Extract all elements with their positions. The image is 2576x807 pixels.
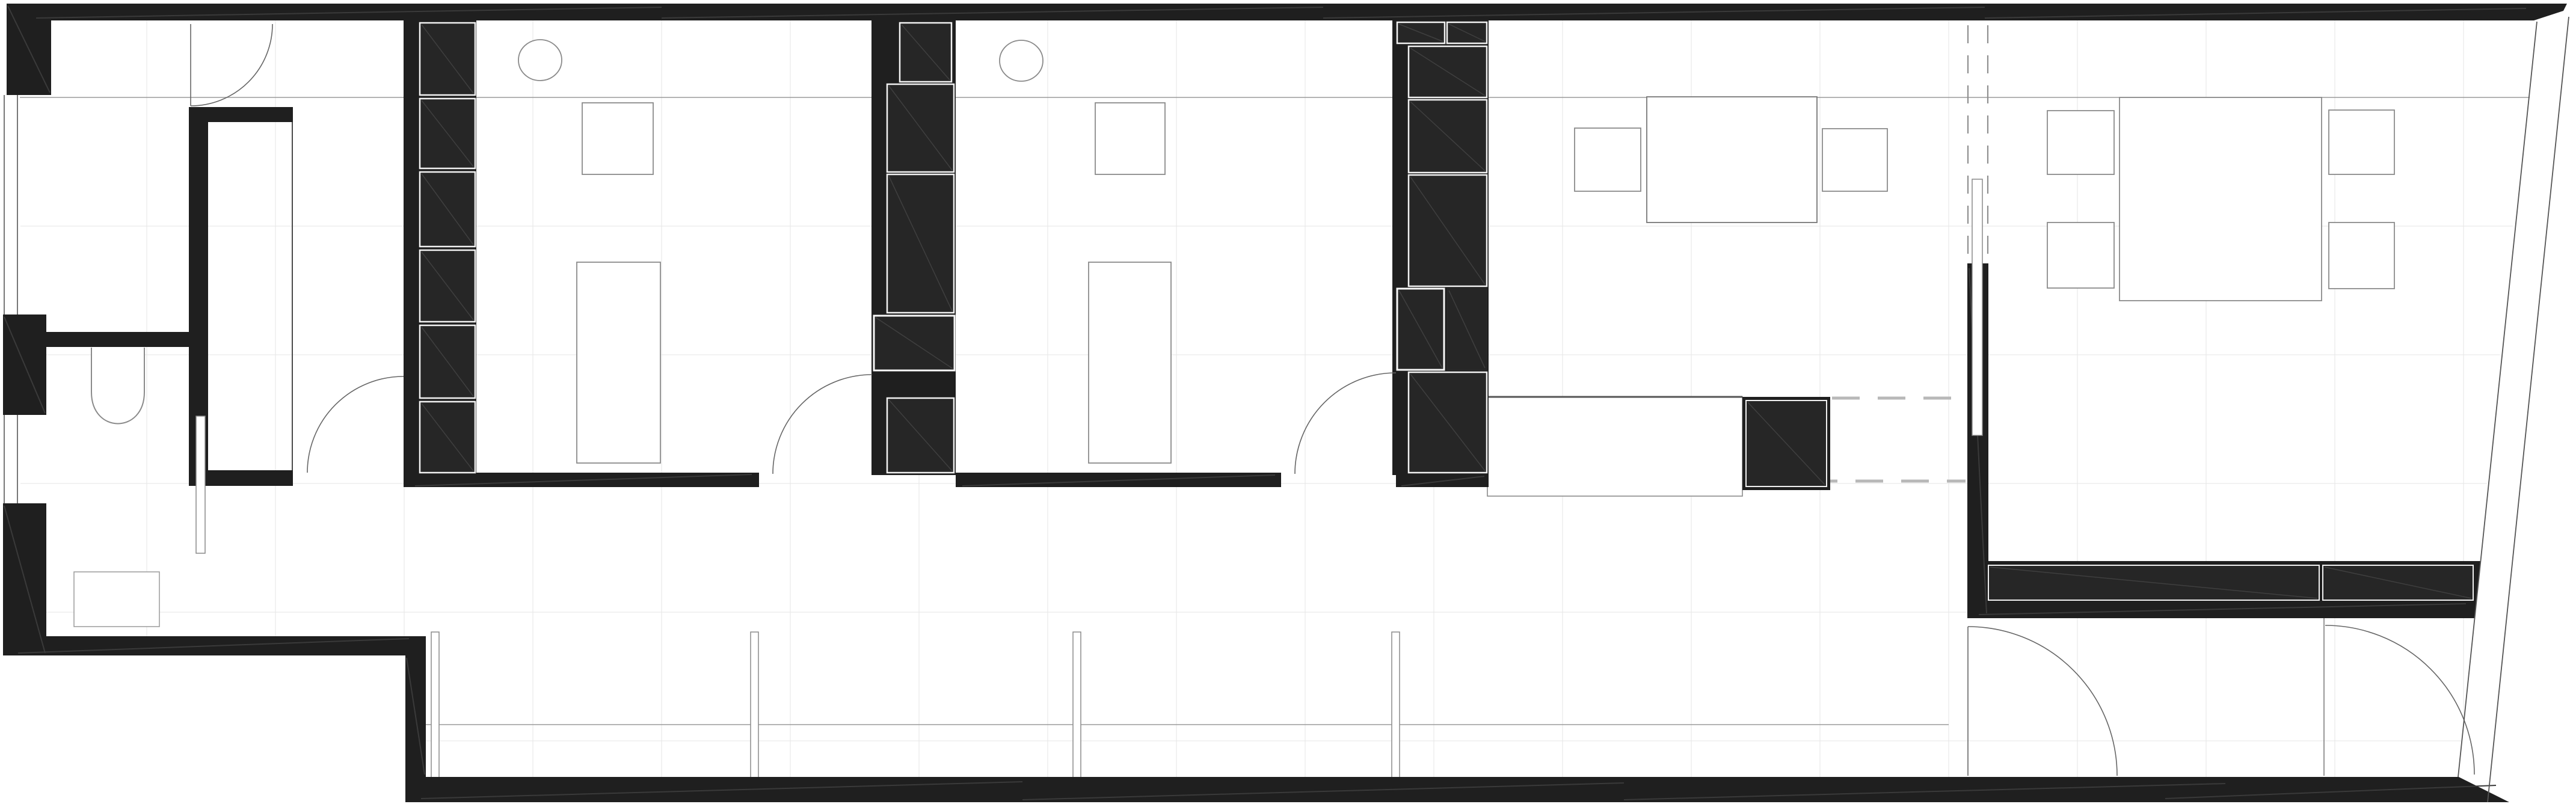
waiting-chair-left bbox=[1575, 128, 1641, 191]
office-chair-2 bbox=[2047, 222, 2114, 288]
waiting-table bbox=[1647, 97, 1817, 222]
door-arc-room-2 bbox=[1295, 373, 1396, 474]
stool-room-2 bbox=[1000, 40, 1043, 81]
toilet bbox=[91, 348, 144, 424]
exit-door-arc-2 bbox=[2325, 625, 2474, 775]
site-boundary-line-1 bbox=[2458, 22, 2537, 777]
office-chair-3 bbox=[2329, 110, 2394, 174]
exterior-wall-bottom bbox=[405, 777, 2509, 802]
stool-room-1 bbox=[518, 40, 562, 81]
column-post-1 bbox=[431, 632, 439, 781]
wall-closet-bottom bbox=[208, 470, 293, 486]
reception-counter bbox=[1487, 397, 1742, 496]
entry-door-arc bbox=[191, 24, 272, 106]
site-boundary-line-2 bbox=[2488, 17, 2569, 802]
column-post-4 bbox=[1392, 632, 1400, 781]
side-table-room-2 bbox=[1095, 103, 1165, 174]
treatment-bed-room-1 bbox=[577, 262, 660, 463]
side-table-room-1 bbox=[582, 103, 653, 174]
floor-plan bbox=[0, 0, 2576, 807]
office-desk bbox=[2120, 97, 2322, 301]
column-post-3 bbox=[1073, 632, 1081, 781]
wc-pocket-door-leaf bbox=[196, 416, 205, 553]
office-chair-4 bbox=[2329, 222, 2394, 289]
office-chair-1 bbox=[2047, 111, 2114, 174]
floor-mat bbox=[74, 572, 159, 627]
floor-plan-canvas bbox=[0, 0, 2576, 807]
column-post-2 bbox=[751, 632, 758, 781]
treatment-bed-room-2 bbox=[1089, 262, 1171, 463]
waiting-chair-right bbox=[1822, 129, 1887, 191]
wall-wc-top bbox=[45, 332, 189, 347]
door-arc-room-1 bbox=[773, 375, 872, 474]
exit-door-arc-1 bbox=[1968, 627, 2117, 776]
hall-door-arc bbox=[307, 376, 404, 473]
pocket-door-leaf bbox=[1972, 179, 1982, 435]
